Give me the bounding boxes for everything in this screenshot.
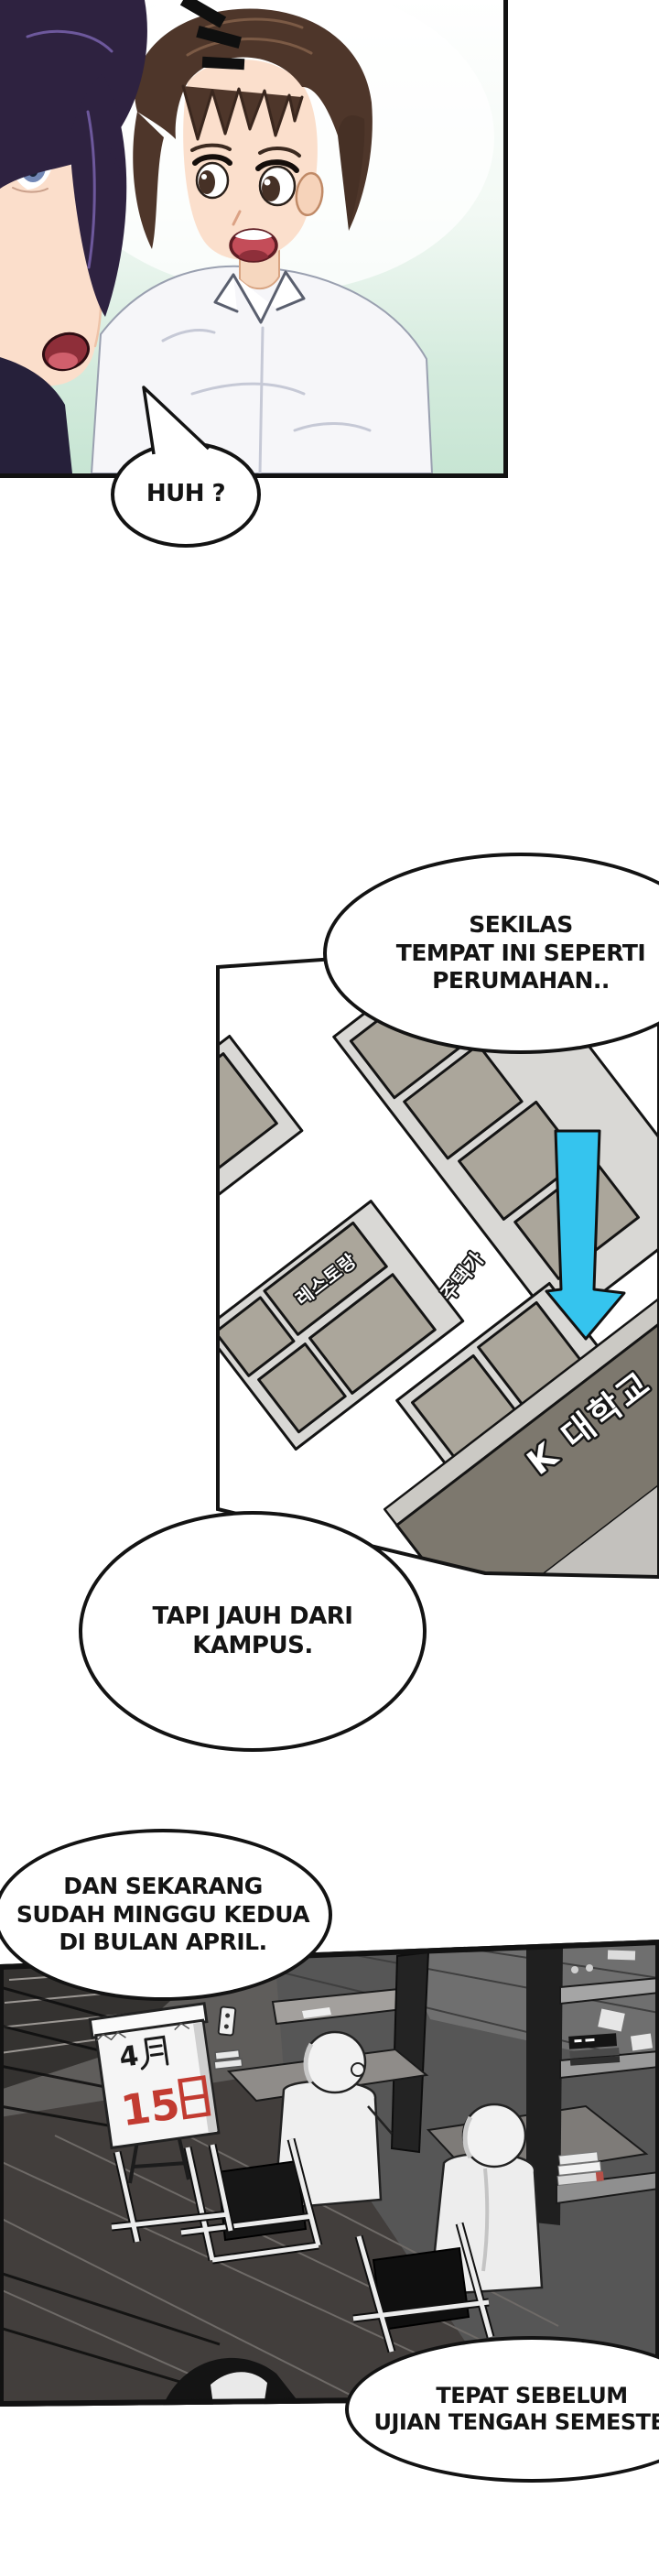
webtoon-page: HUH ? [0,0,659,2576]
bubble-line: UJIAN TENGAH SEMESTER. [374,2409,659,2436]
panel-opening-scene [0,0,508,478]
bubble-text: HUH ? [146,480,225,509]
speech-bubble-tail [119,377,220,460]
speech-bubble-tapi: TAPI JAUH DARI KAMPUS. [79,1511,427,1752]
calendar-day-numeral: 15 [118,2079,183,2136]
bubble-line: TEPAT SEBELUM [436,2383,627,2409]
books [556,2151,604,2185]
bubble-line: KAMPUS. [192,1632,312,1661]
bubble-line: DAN SEKARANG [63,1873,263,1901]
bubble-line: DI BULAN APRIL. [59,1929,266,1957]
panel1-art [0,0,503,473]
speech-bubble-dan: DAN SEKARANG SUDAH MINGGU KEDUA DI BULAN… [0,1829,332,2001]
bubble-line: SEKILAS [469,911,573,940]
bubble-line: TAPI JAUH DARI [153,1603,353,1632]
bubble-line: PERUMAHAN.. [432,967,610,995]
bubble-line: SUDAH MINGGU KEDUA [16,1901,309,1929]
bubble-line: TEMPAT INI SEPERTI [396,940,645,968]
